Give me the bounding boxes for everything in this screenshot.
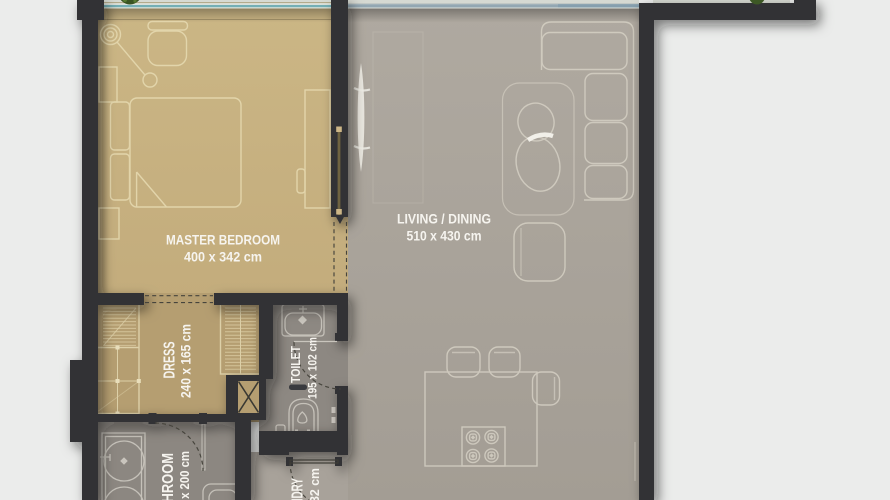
svg-text:MASTER BEDROOM: MASTER BEDROOM <box>166 233 280 248</box>
svg-text:TOILET: TOILET <box>288 346 303 383</box>
svg-text:400 x 342 cm: 400 x 342 cm <box>184 250 262 265</box>
svg-text:BATHROOM: BATHROOM <box>160 453 177 500</box>
svg-text:DRESS: DRESS <box>162 342 179 379</box>
svg-text:105 x 132 cm: 105 x 132 cm <box>307 468 322 500</box>
svg-text:LAUNDRY: LAUNDRY <box>290 478 307 500</box>
svg-text:LIVING / DINING: LIVING / DINING <box>397 212 491 227</box>
svg-text:195 x 102 cm: 195 x 102 cm <box>306 337 320 399</box>
svg-text:140 x 200 cm: 140 x 200 cm <box>177 451 192 500</box>
svg-text:240 x 165 cm: 240 x 165 cm <box>179 324 194 398</box>
svg-text:510 x 430 cm: 510 x 430 cm <box>407 229 482 244</box>
